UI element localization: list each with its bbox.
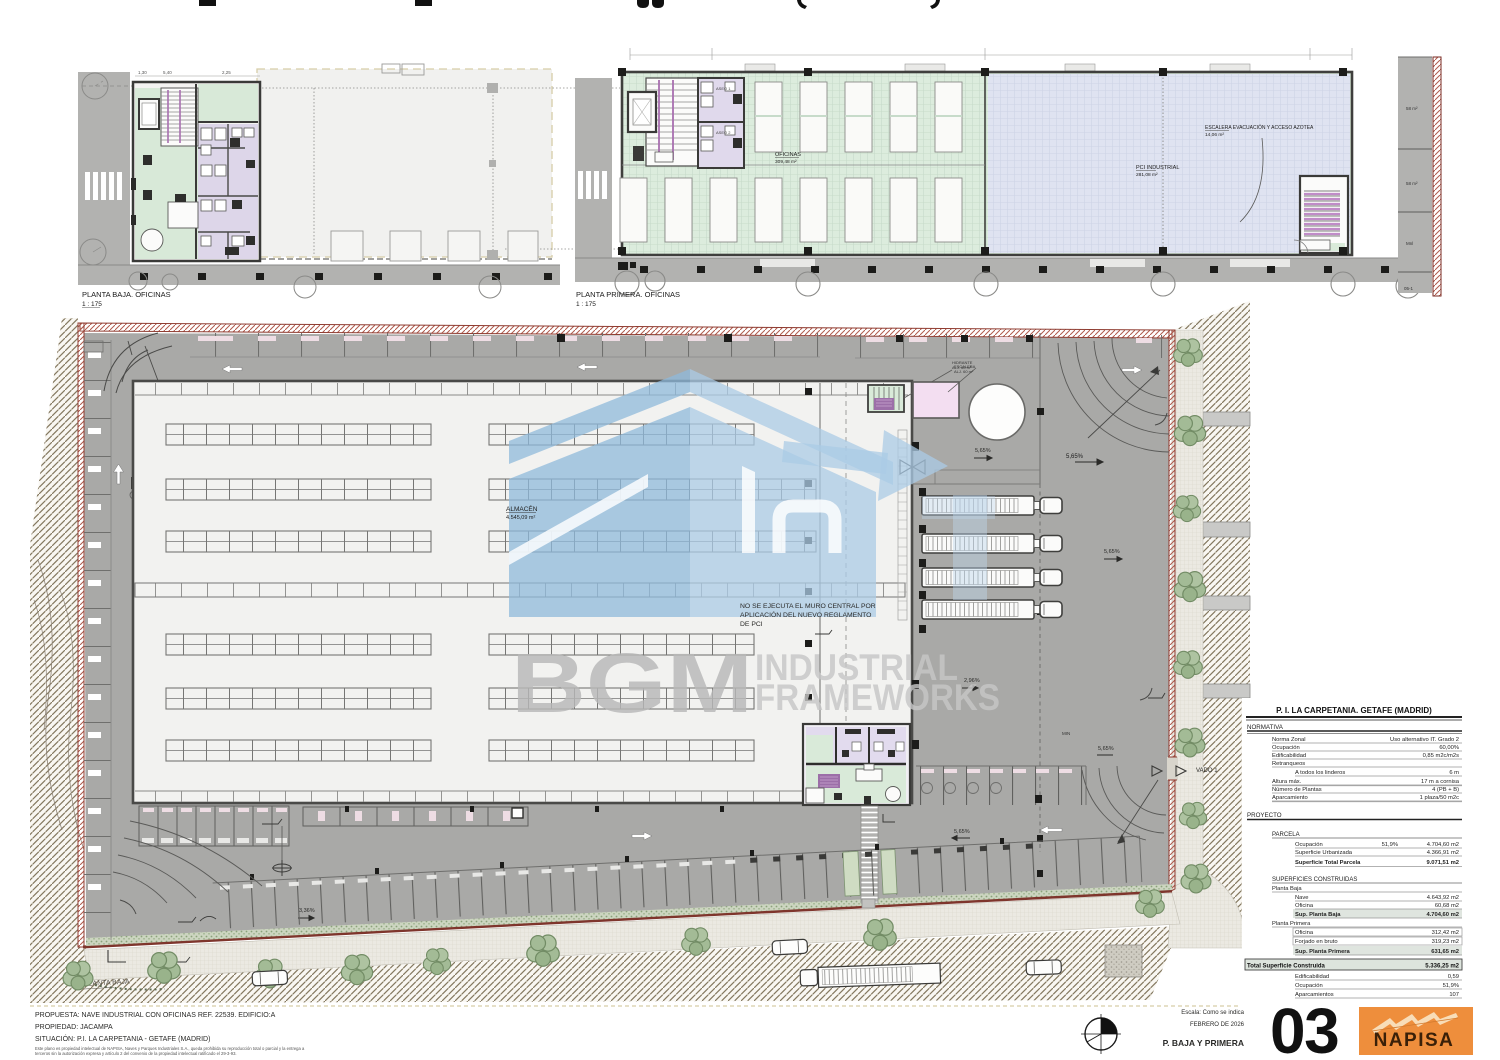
svg-text:0,85 m2c/m2s: 0,85 m2c/m2s: [1423, 753, 1460, 759]
svg-text:FRAMEWORKS: FRAMEWORKS: [755, 677, 1000, 718]
svg-text:Ocupación: Ocupación: [1295, 983, 1323, 989]
svg-text:ALJ. 60 m³: ALJ. 60 m³: [952, 365, 972, 370]
svg-text:NO SE EJECUTA EL MURO CENTRAL: NO SE EJECUTA EL MURO CENTRAL POR: [740, 603, 876, 610]
svg-text:Planta Primera: Planta Primera: [1272, 921, 1311, 927]
svg-text:60,68 m2: 60,68 m2: [1435, 903, 1459, 909]
svg-text:NORMATIVA: NORMATIVA: [1247, 724, 1284, 731]
svg-text:ASEO 1: ASEO 1: [716, 86, 731, 91]
svg-text:Mnl: Mnl: [1406, 241, 1413, 246]
svg-text:03: 03: [1270, 995, 1338, 1060]
svg-text:58 m²: 58 m²: [1406, 106, 1418, 111]
svg-text:A todos los linderos: A todos los linderos: [1295, 770, 1345, 776]
svg-text:PARCELA: PARCELA: [1272, 832, 1300, 838]
svg-text:Nave: Nave: [1295, 895, 1309, 901]
svg-text:PROPUESTA: NAVE INDUSTRIAL CON: PROPUESTA: NAVE INDUSTRIAL CON OFICINAS …: [35, 1012, 276, 1019]
svg-text:Edificabilidad: Edificabilidad: [1295, 974, 1329, 980]
svg-text:Escala: Como se indica: Escala: Como se indica: [1181, 1010, 1244, 1016]
svg-text:Total Superficie Construida: Total Superficie Construida: [1247, 964, 1326, 970]
svg-text:VADO 1: VADO 1: [1196, 768, 1218, 774]
svg-text:5,65%: 5,65%: [975, 448, 991, 454]
svg-text:1 : 175: 1 : 175: [576, 301, 596, 308]
svg-text:0,59: 0,59: [1448, 974, 1459, 980]
svg-text:9.071,51 m2: 9.071,51 m2: [1426, 860, 1459, 866]
svg-text:14,06 m²: 14,06 m²: [1205, 132, 1224, 138]
svg-text:Aparcamiento: Aparcamiento: [1272, 795, 1308, 801]
svg-text:631,65 m2: 631,65 m2: [1431, 949, 1459, 955]
svg-text:Número de Plantas: Número de Plantas: [1272, 787, 1322, 793]
svg-text:PLANTA PRIMERA. OFICINAS: PLANTA PRIMERA. OFICINAS: [576, 290, 680, 299]
svg-text:terceros sin la autorización e: terceros sin la autorización expresa y a…: [35, 1051, 237, 1056]
svg-text:5,65%: 5,65%: [1098, 746, 1114, 752]
svg-text:1 plaza/50 m2c: 1 plaza/50 m2c: [1420, 795, 1459, 801]
svg-text:P. I. LA CARPETANIA. GETAFE (M: P. I. LA CARPETANIA. GETAFE (MADRID): [1276, 706, 1432, 715]
svg-text:PCI INDUSTRIAL: PCI INDUSTRIAL: [1136, 165, 1179, 171]
svg-text:SITUACIÓN: P.I. LA CARPETANIA: SITUACIÓN: P.I. LA CARPETANIA - GETAFE (…: [35, 1034, 210, 1043]
svg-text:58 m²: 58 m²: [1406, 181, 1418, 186]
svg-text:ESCALERA EVACUACIÓN Y ACCESO A: ESCALERA EVACUACIÓN Y ACCESO AZOTEA: [1205, 124, 1314, 131]
svg-text:4 (PB + B): 4 (PB + B): [1432, 787, 1459, 793]
svg-text:05-1: 05-1: [1404, 286, 1414, 291]
svg-text:ASEO 2: ASEO 2: [716, 130, 731, 135]
svg-text:Superficie Urbanizada: Superficie Urbanizada: [1295, 850, 1353, 856]
svg-text:107: 107: [1449, 992, 1459, 998]
svg-text:Altura máx.: Altura máx.: [1272, 779, 1302, 785]
svg-text:Retranqueos: Retranqueos: [1272, 761, 1305, 767]
svg-text:5,40: 5,40: [163, 70, 172, 75]
svg-text:1 : 175: 1 : 175: [82, 301, 102, 308]
svg-text:FEBRERO DE 2026: FEBRERO DE 2026: [1190, 1022, 1245, 1028]
svg-text:Sup. Planta Baja: Sup. Planta Baja: [1295, 912, 1341, 918]
svg-text:17 m a cornisa: 17 m a cornisa: [1421, 779, 1460, 785]
svg-text:DE PCI: DE PCI: [740, 621, 763, 628]
svg-text:319,23 m2: 319,23 m2: [1432, 939, 1459, 945]
svg-text:Superficie Total Parcela: Superficie Total Parcela: [1295, 860, 1361, 866]
svg-text:51,9%: 51,9%: [1443, 983, 1459, 989]
svg-text:4.704,60 m2: 4.704,60 m2: [1426, 912, 1459, 918]
svg-text:APLICACIÓN DEL NUEVO REGLAMENT: APLICACIÓN DEL NUEVO REGLAMENTO: [740, 610, 871, 619]
svg-text:1,30: 1,30: [138, 70, 147, 75]
svg-text:PROYECTO: PROYECTO: [1247, 812, 1282, 819]
svg-text:ALMACÉN: ALMACÉN: [506, 504, 538, 513]
svg-text:P. BAJA Y PRIMERA: P. BAJA Y PRIMERA: [1163, 1038, 1244, 1048]
svg-text:5,65%: 5,65%: [1104, 549, 1120, 555]
svg-text:NAPISA: NAPISA: [1374, 1030, 1455, 1051]
svg-text:Forjado en bruto: Forjado en bruto: [1295, 939, 1338, 945]
svg-text:2,25: 2,25: [222, 70, 231, 75]
svg-text:MIN: MIN: [1062, 731, 1070, 736]
svg-text:Edificabilidad: Edificabilidad: [1272, 753, 1306, 759]
svg-text:4.643,92 m2: 4.643,92 m2: [1427, 895, 1459, 901]
svg-text:60,00%: 60,00%: [1439, 745, 1459, 751]
svg-text:OFICINAS: OFICINAS: [775, 152, 801, 158]
svg-text:SUPERFICIES CONSTRUIDAS: SUPERFICIES CONSTRUIDAS: [1272, 877, 1357, 883]
svg-text:4.545,09 m²: 4.545,09 m²: [506, 515, 536, 521]
svg-text:Uso alternativo IT. Grado 2: Uso alternativo IT. Grado 2: [1390, 737, 1459, 743]
svg-text:PROPIEDAD: JACAMPA: PROPIEDAD: JACAMPA: [35, 1024, 113, 1031]
svg-text:PLANTA BAJA. OFICINAS: PLANTA BAJA. OFICINAS: [82, 290, 171, 299]
svg-text:4.366,91 m2: 4.366,91 m2: [1427, 850, 1459, 856]
svg-text:309,48 m²: 309,48 m²: [775, 159, 797, 165]
svg-text:BGM: BGM: [511, 636, 753, 730]
svg-text:Planta Baja: Planta Baja: [1272, 886, 1302, 892]
svg-text:5.336,25 m2: 5.336,25 m2: [1425, 964, 1459, 970]
svg-text:51,9%: 51,9%: [1382, 842, 1398, 848]
svg-text:312,42 m2: 312,42 m2: [1432, 930, 1459, 936]
svg-text:5,65%: 5,65%: [1066, 454, 1084, 460]
svg-text:5,65%: 5,65%: [954, 829, 970, 835]
svg-text:4.704,60 m2: 4.704,60 m2: [1427, 842, 1459, 848]
svg-text:Norma Zonal: Norma Zonal: [1272, 737, 1306, 743]
svg-text:Ocupación: Ocupación: [1295, 842, 1323, 848]
svg-text:Sup. Planta Primera: Sup. Planta Primera: [1295, 949, 1351, 955]
svg-text:Oficina: Oficina: [1295, 903, 1314, 909]
svg-text:Oficina: Oficina: [1295, 930, 1314, 936]
svg-text:6 m: 6 m: [1449, 770, 1459, 776]
svg-text:281,08 m²: 281,08 m²: [1136, 172, 1158, 178]
svg-text:Ocupación: Ocupación: [1272, 745, 1300, 751]
